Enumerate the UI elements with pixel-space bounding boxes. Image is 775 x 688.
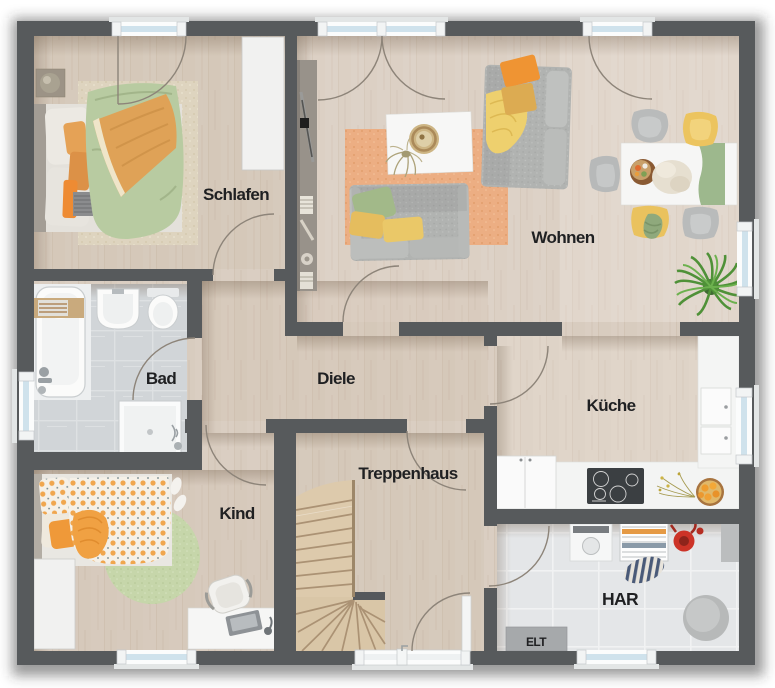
svg-text:Schlafen: Schlafen <box>203 185 269 204</box>
svg-text:Treppenhaus: Treppenhaus <box>358 464 457 483</box>
svg-text:Diele: Diele <box>317 369 355 388</box>
svg-text:Küche: Küche <box>587 396 636 415</box>
svg-text:Kind: Kind <box>219 504 255 523</box>
svg-text:Bad: Bad <box>146 369 177 388</box>
svg-text:HAR: HAR <box>602 589 639 609</box>
svg-text:ELT: ELT <box>526 635 547 649</box>
svg-text:Wohnen: Wohnen <box>531 228 594 247</box>
